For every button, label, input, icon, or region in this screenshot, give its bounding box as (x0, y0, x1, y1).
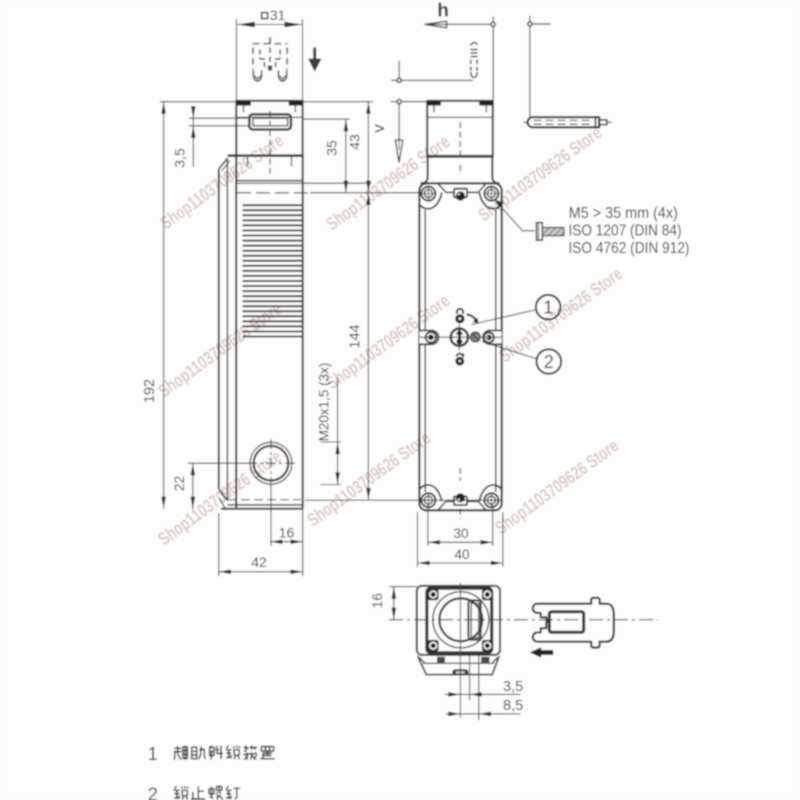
svg-text:h: h (437, 1, 449, 22)
svg-text:31: 31 (270, 7, 286, 23)
svg-text:192: 192 (142, 379, 158, 403)
svg-text:M20x1,5 (3x): M20x1,5 (3x) (317, 363, 332, 442)
svg-text:ISO 4762 (DIN 912): ISO 4762 (DIN 912) (569, 240, 690, 257)
svg-text:42: 42 (251, 554, 267, 570)
svg-text:30: 30 (453, 526, 468, 541)
svg-text:43: 43 (346, 134, 362, 150)
svg-text:ISO 1207 (DIN 84): ISO 1207 (DIN 84) (569, 222, 682, 239)
svg-text:16: 16 (369, 593, 385, 609)
svg-text:144: 144 (348, 324, 364, 348)
svg-text:2: 2 (148, 785, 158, 800)
svg-text:v: v (369, 124, 388, 133)
svg-text:3,5: 3,5 (503, 679, 523, 695)
svg-text:40: 40 (454, 547, 469, 562)
svg-text:16: 16 (279, 524, 295, 540)
svg-text:1: 1 (148, 744, 158, 764)
svg-text:3,5: 3,5 (172, 148, 188, 168)
svg-text:2: 2 (544, 352, 554, 372)
svg-text:1: 1 (543, 298, 553, 318)
svg-text:M5 > 35 mm (4x): M5 > 35 mm (4x) (569, 205, 678, 222)
svg-text:8,5: 8,5 (503, 698, 523, 714)
svg-text:22: 22 (171, 476, 187, 492)
svg-text:35: 35 (324, 140, 340, 156)
